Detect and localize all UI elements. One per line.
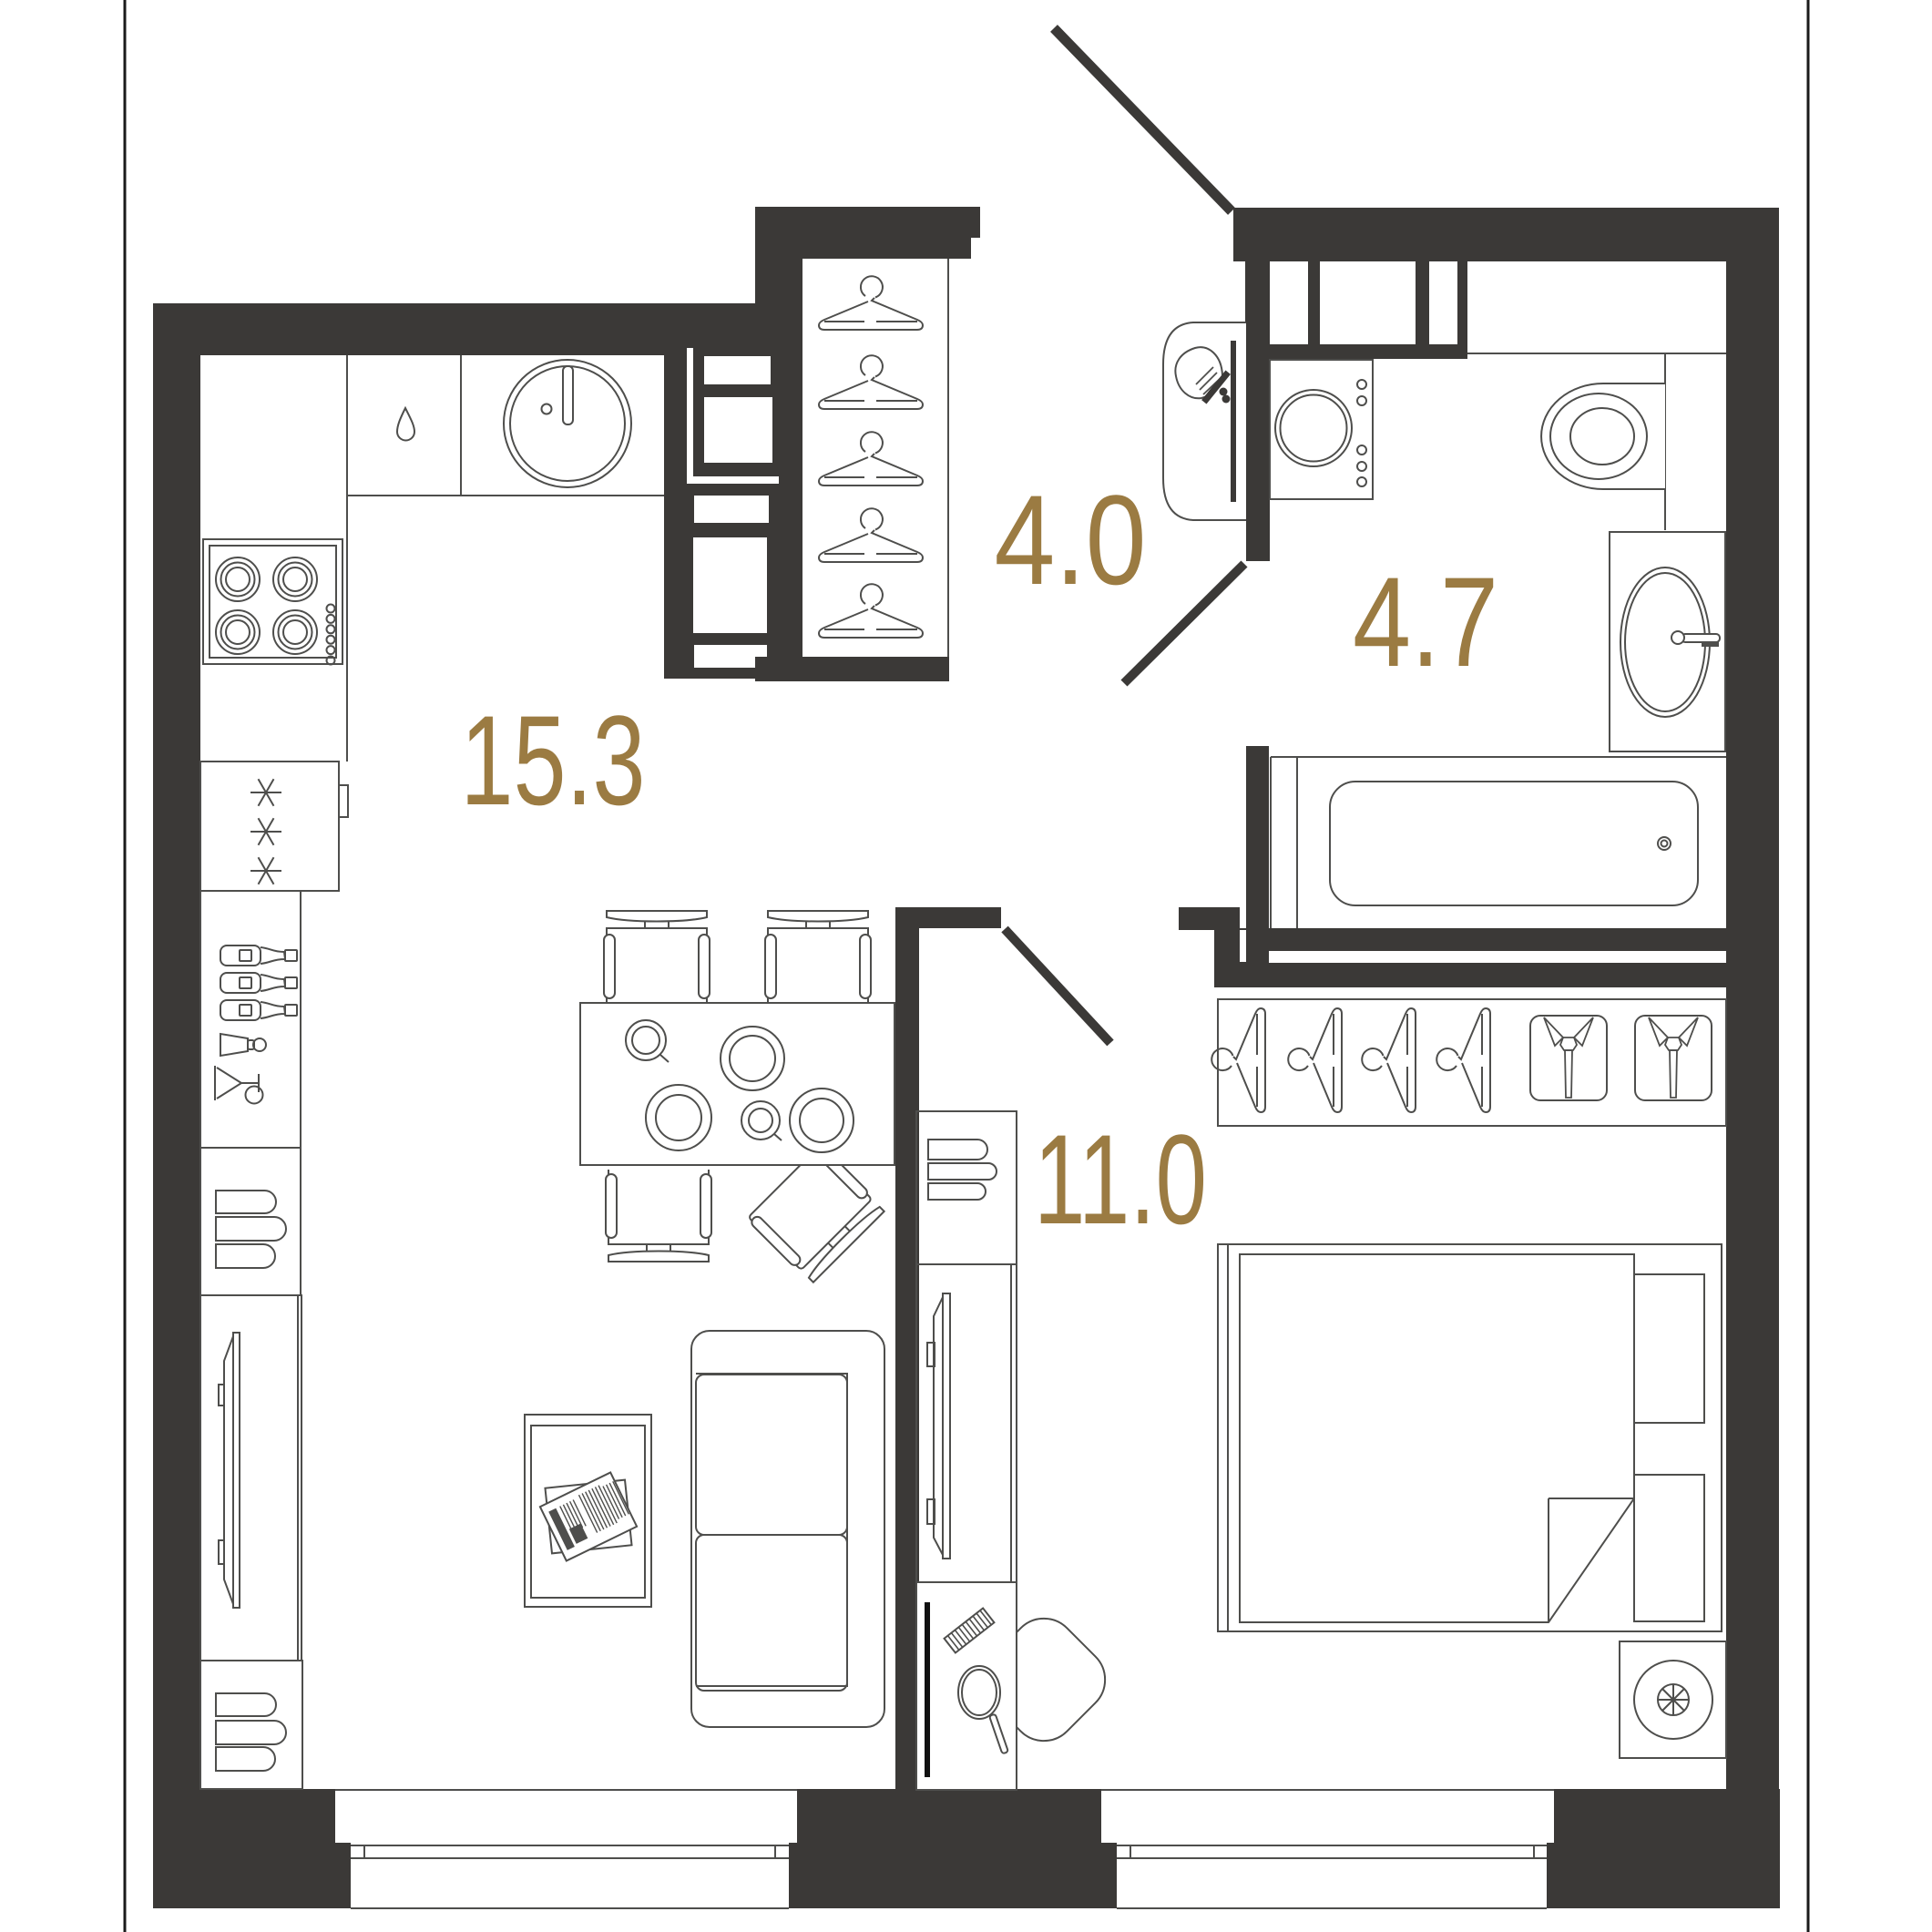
svg-text:4.0: 4.0 (995, 468, 1147, 611)
svg-text:4.7: 4.7 (1353, 550, 1498, 693)
svg-text:11.0: 11.0 (1034, 1108, 1207, 1251)
svg-text:15.3: 15.3 (461, 689, 646, 832)
